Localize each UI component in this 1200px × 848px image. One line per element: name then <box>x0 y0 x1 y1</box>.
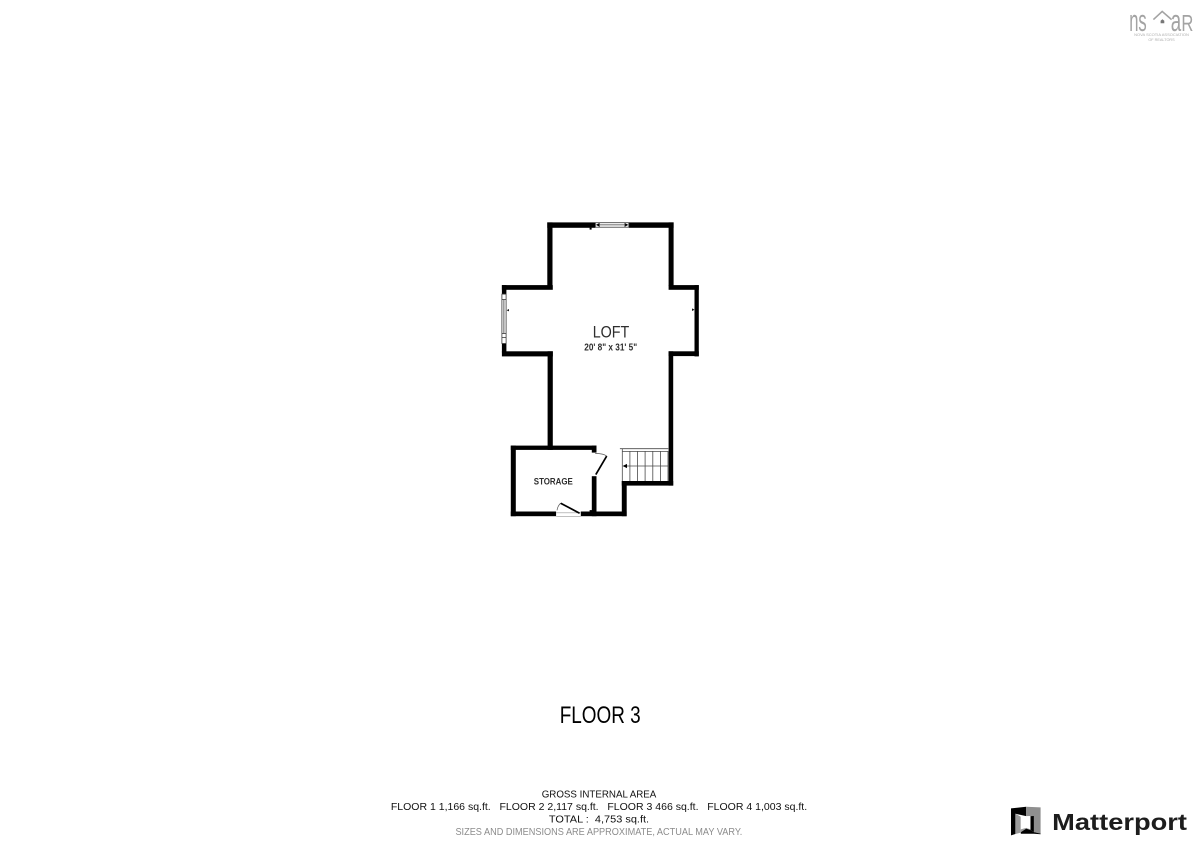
svg-text:GROSS INTERNAL AREA: GROSS INTERNAL AREA <box>542 790 657 801</box>
svg-text:20' 8" x 31' 5": 20' 8" x 31' 5" <box>584 343 637 354</box>
svg-text:OF REALTORS: OF REALTORS <box>1148 38 1175 42</box>
svg-text:NOVA SCOTIA ASSOCIATION: NOVA SCOTIA ASSOCIATION <box>1134 33 1189 37</box>
svg-text:SIZES AND DIMENSIONS ARE APPRO: SIZES AND DIMENSIONS ARE APPROXIMATE, AC… <box>455 827 742 838</box>
svg-text:FLOOR 3: FLOOR 3 <box>560 702 641 729</box>
svg-text:Matterport: Matterport <box>1052 809 1187 835</box>
svg-text:STORAGE: STORAGE <box>534 476 573 486</box>
svg-text:LOFT: LOFT <box>593 324 630 342</box>
svg-text:FLOOR 1 1,166 sq.ft. FLOOR 2: FLOOR 1 1,166 sq.ft. FLOOR 2 2,117 sq.ft… <box>391 802 807 813</box>
svg-text:TOTAL : 4,753 sq.ft.: TOTAL : 4,753 sq.ft. <box>549 814 649 825</box>
svg-text:R: R <box>1181 10 1193 36</box>
